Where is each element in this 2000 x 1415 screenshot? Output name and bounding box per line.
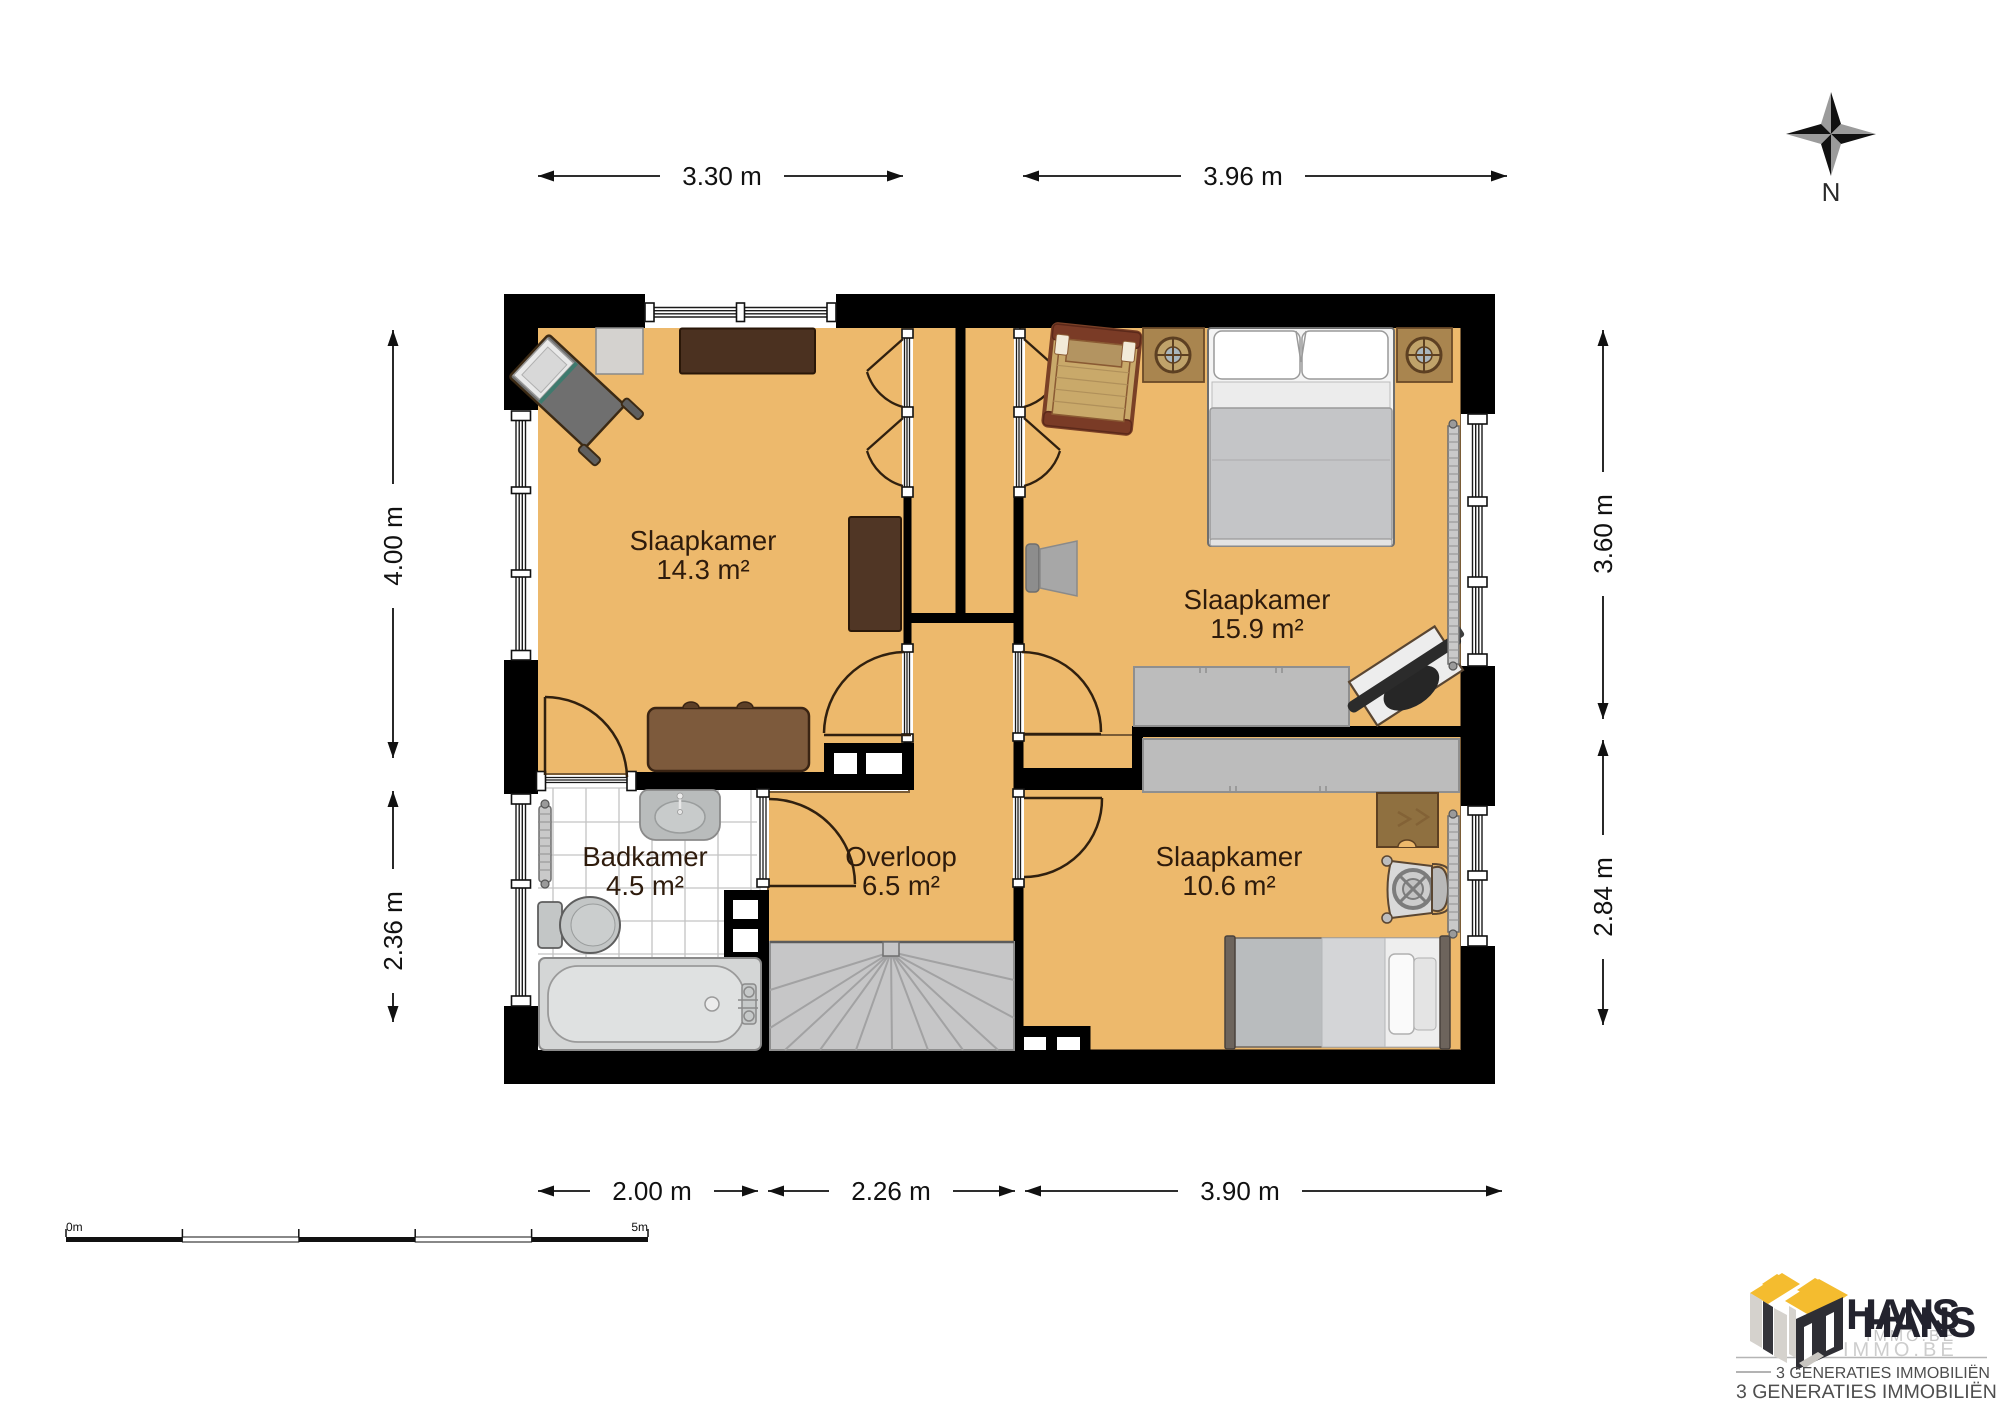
svg-text:6.5 m²: 6.5 m² [862,870,940,901]
svg-text:2.36 m: 2.36 m [378,891,408,971]
svg-text:2.00 m: 2.00 m [612,1176,692,1206]
svg-text:5m: 5m [631,1220,648,1234]
svg-text:14.3 m²: 14.3 m² [656,554,749,585]
svg-text:Slaapkamer: Slaapkamer [1184,584,1331,615]
svg-text:Overloop: Overloop [845,841,957,872]
svg-text:4.5 m²: 4.5 m² [606,870,684,901]
svg-text:3.96 m: 3.96 m [1203,161,1283,191]
svg-text:3.60 m: 3.60 m [1588,494,1618,574]
svg-text:3 GENERATIES IMMOBILIËN: 3 GENERATIES IMMOBILIËN [1776,1364,1990,1382]
svg-text:2.26 m: 2.26 m [851,1176,931,1206]
svg-text:IMMO.BE: IMMO.BE [1843,1339,1958,1361]
svg-text:3.30 m: 3.30 m [682,161,762,191]
svg-text:0m: 0m [66,1220,83,1234]
svg-text:Slaapkamer: Slaapkamer [630,525,777,556]
svg-text:15.9 m²: 15.9 m² [1210,613,1303,644]
svg-text:Slaapkamer: Slaapkamer [1156,841,1303,872]
svg-text:Badkamer: Badkamer [582,841,707,872]
svg-text:3.90 m: 3.90 m [1200,1176,1280,1206]
svg-text:2.84 m: 2.84 m [1588,857,1618,937]
svg-text:10.6 m²: 10.6 m² [1182,870,1275,901]
svg-text:4.00 m: 4.00 m [378,506,408,586]
svg-text:3 GENERATIES IMMOBILIËN: 3 GENERATIES IMMOBILIËN [1736,1381,1997,1403]
svg-text:N: N [1822,177,1841,207]
